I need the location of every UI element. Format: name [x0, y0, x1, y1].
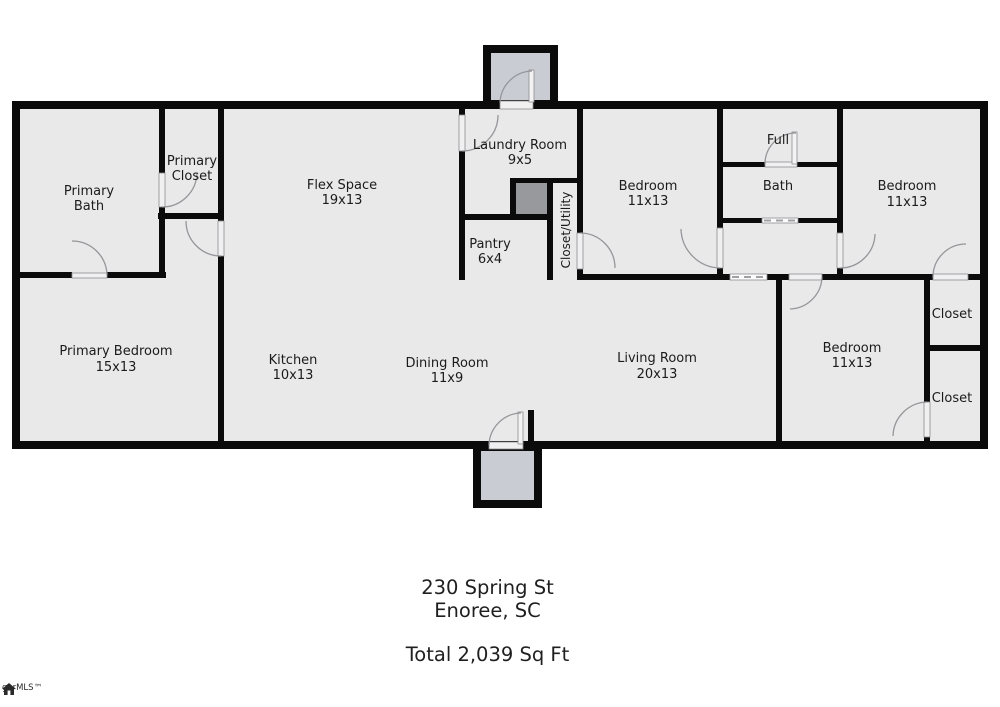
wall-segment [107, 272, 166, 278]
wall-segment [459, 105, 465, 115]
footer-text-block: 230 Spring St Enoree, SC Total 2,039 Sq … [0, 576, 975, 666]
door-opening [924, 402, 930, 437]
room-label: 10x13 [273, 368, 314, 383]
room-label: Primary [64, 184, 115, 199]
wall-segment [547, 178, 553, 280]
wall-segment [577, 105, 583, 233]
wall-segment [723, 218, 762, 223]
room-label: Bedroom [823, 341, 882, 356]
wall-segment [776, 274, 782, 449]
room-label: 11x13 [628, 194, 669, 209]
wall-segment [837, 105, 843, 233]
wall-segment [797, 162, 838, 167]
wall-segment [510, 178, 516, 220]
room-label: Closet [172, 169, 213, 184]
total-sqft: Total 2,039 Sq Ft [0, 643, 975, 666]
room-label: Living Room [617, 351, 697, 366]
wall-segment [798, 218, 838, 223]
house-icon [2, 683, 16, 696]
door-leaf [518, 412, 523, 444]
room-label: 11x13 [832, 356, 873, 371]
wall-segment [924, 437, 930, 449]
room-label: Bedroom [619, 179, 678, 194]
door-leaf [792, 132, 797, 164]
room-label: Closet [932, 391, 973, 406]
wall-segment [822, 274, 933, 280]
room-label: 15x13 [96, 360, 137, 375]
room-label: 19x13 [322, 193, 363, 208]
room-label: 11x9 [431, 371, 464, 386]
mls-watermark: garMLS™ [2, 683, 42, 693]
room-label: Primary [167, 154, 218, 169]
door-opening [500, 101, 533, 109]
room-label: 20x13 [637, 367, 678, 382]
wall-segment [968, 274, 985, 280]
door-opening [717, 228, 723, 268]
wall-segment [528, 410, 534, 445]
floorplan: Primary Bath Primary Closet Flex Space 1… [12, 49, 985, 504]
door-opening [218, 221, 224, 256]
room-label: 11x13 [887, 195, 928, 210]
door-leaf [529, 70, 534, 102]
room-label: Closet/Utility [559, 192, 573, 269]
wall-segment [459, 214, 553, 220]
room-label: Flex Space [307, 178, 377, 193]
wall-segment [510, 178, 583, 183]
wall-segment [723, 162, 765, 167]
room-label: Primary Bedroom [59, 344, 172, 359]
wall-segment [159, 105, 165, 173]
room-label: Pantry [469, 237, 511, 252]
door-opening [459, 115, 465, 151]
wall-segment [577, 274, 730, 280]
room-label: Dining Room [405, 356, 488, 371]
wall-segment [717, 105, 723, 228]
room-label: 9x5 [508, 153, 532, 168]
room-label: Closet [932, 307, 973, 322]
wall-segment [218, 256, 224, 449]
room-label: 6x4 [478, 252, 502, 267]
door-opening [577, 233, 583, 269]
wall-segment [218, 105, 224, 221]
room-label: Bath [74, 199, 104, 214]
room-label: Bedroom [878, 179, 937, 194]
room-label: Kitchen [269, 353, 318, 368]
wall-segment [158, 213, 224, 219]
address-line2: Enoree, SC [0, 599, 975, 622]
wall-segment [767, 274, 789, 280]
wall-segment [924, 278, 930, 402]
wall-segment [12, 272, 72, 278]
mechanical-shaft [516, 183, 548, 215]
room-label: Bath [763, 179, 793, 194]
porch-top [487, 49, 554, 104]
floor-plan-page: Primary Bath Primary Closet Flex Space 1… [0, 0, 1000, 707]
room-label: Laundry Room [473, 138, 567, 153]
wall-segment [924, 345, 985, 351]
address-line1: 230 Spring St [0, 576, 975, 599]
door-opening [72, 273, 107, 278]
door-opening [789, 274, 822, 280]
door-opening [837, 233, 843, 268]
porch-bottom [477, 447, 538, 504]
door-opening [159, 173, 165, 207]
door-opening [933, 274, 968, 280]
room-label: Full [767, 133, 789, 148]
